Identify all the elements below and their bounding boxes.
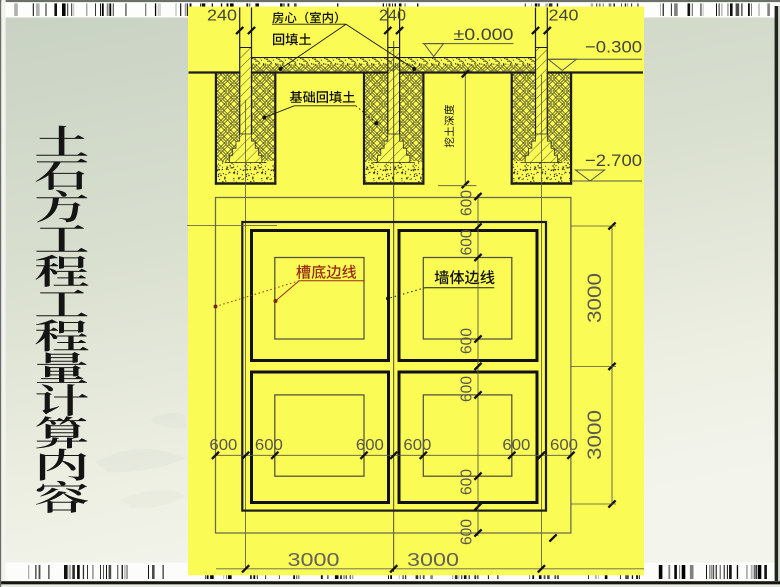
svg-text:600: 600 (550, 437, 578, 454)
svg-text:3000: 3000 (585, 410, 606, 460)
svg-text:600: 600 (502, 437, 530, 454)
svg-text:600: 600 (459, 469, 476, 495)
svg-text:600: 600 (403, 437, 431, 454)
svg-text:±0.000: ±0.000 (454, 25, 514, 44)
svg-text:240: 240 (379, 8, 406, 25)
svg-text:3000: 3000 (585, 273, 606, 323)
svg-text:600: 600 (356, 437, 384, 454)
svg-text:3000: 3000 (407, 550, 459, 570)
svg-text:−2.700: −2.700 (585, 151, 642, 170)
svg-text:240: 240 (549, 8, 579, 25)
svg-text:600: 600 (459, 190, 476, 216)
svg-text:600: 600 (209, 437, 237, 454)
svg-text:−0.300: −0.300 (585, 38, 642, 57)
svg-text:600: 600 (459, 519, 476, 545)
svg-text:240: 240 (207, 8, 237, 25)
svg-text:3000: 3000 (288, 550, 340, 570)
svg-text:600: 600 (459, 376, 476, 402)
svg-text:600: 600 (255, 437, 283, 454)
svg-text:600: 600 (459, 328, 476, 354)
svg-text:600: 600 (459, 229, 476, 255)
